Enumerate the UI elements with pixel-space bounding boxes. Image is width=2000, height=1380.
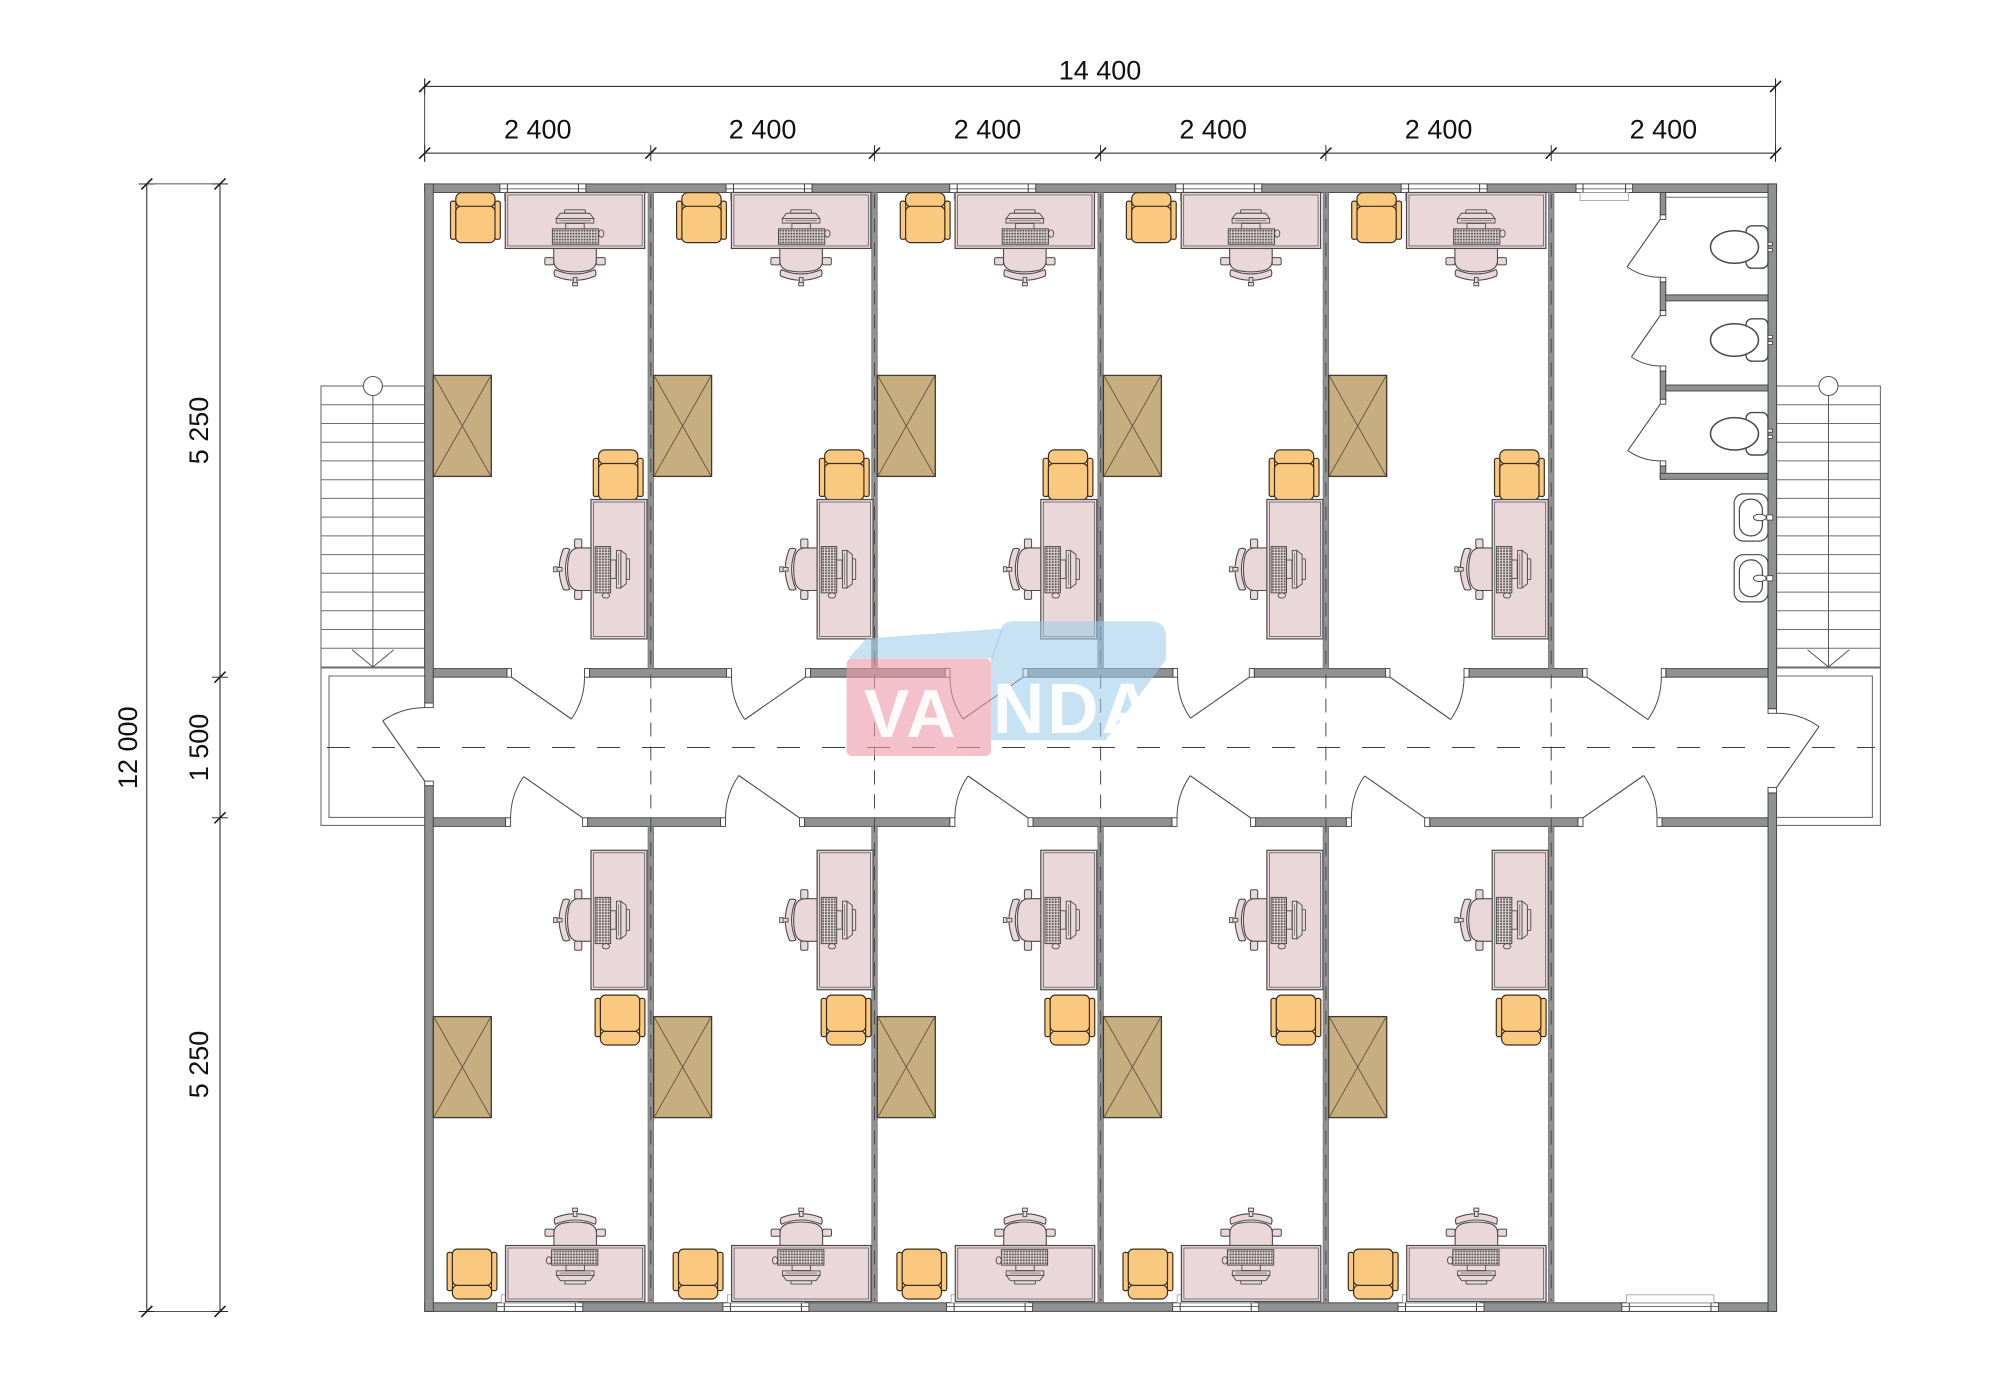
svg-text:2 400: 2 400 bbox=[1179, 115, 1247, 145]
svg-text:VA: VA bbox=[864, 676, 957, 752]
svg-text:5 250: 5 250 bbox=[184, 1031, 214, 1099]
svg-text:14 400: 14 400 bbox=[1059, 56, 1142, 86]
svg-text:NDA: NDA bbox=[993, 670, 1156, 749]
svg-text:2 400: 2 400 bbox=[729, 115, 797, 145]
svg-text:2 400: 2 400 bbox=[1630, 115, 1698, 145]
svg-text:12 000: 12 000 bbox=[113, 706, 143, 789]
svg-text:2 400: 2 400 bbox=[954, 115, 1022, 145]
svg-text:1 500: 1 500 bbox=[184, 714, 214, 782]
svg-text:2 400: 2 400 bbox=[1405, 115, 1473, 145]
svg-text:5 250: 5 250 bbox=[184, 397, 214, 465]
svg-text:2 400: 2 400 bbox=[504, 115, 572, 145]
